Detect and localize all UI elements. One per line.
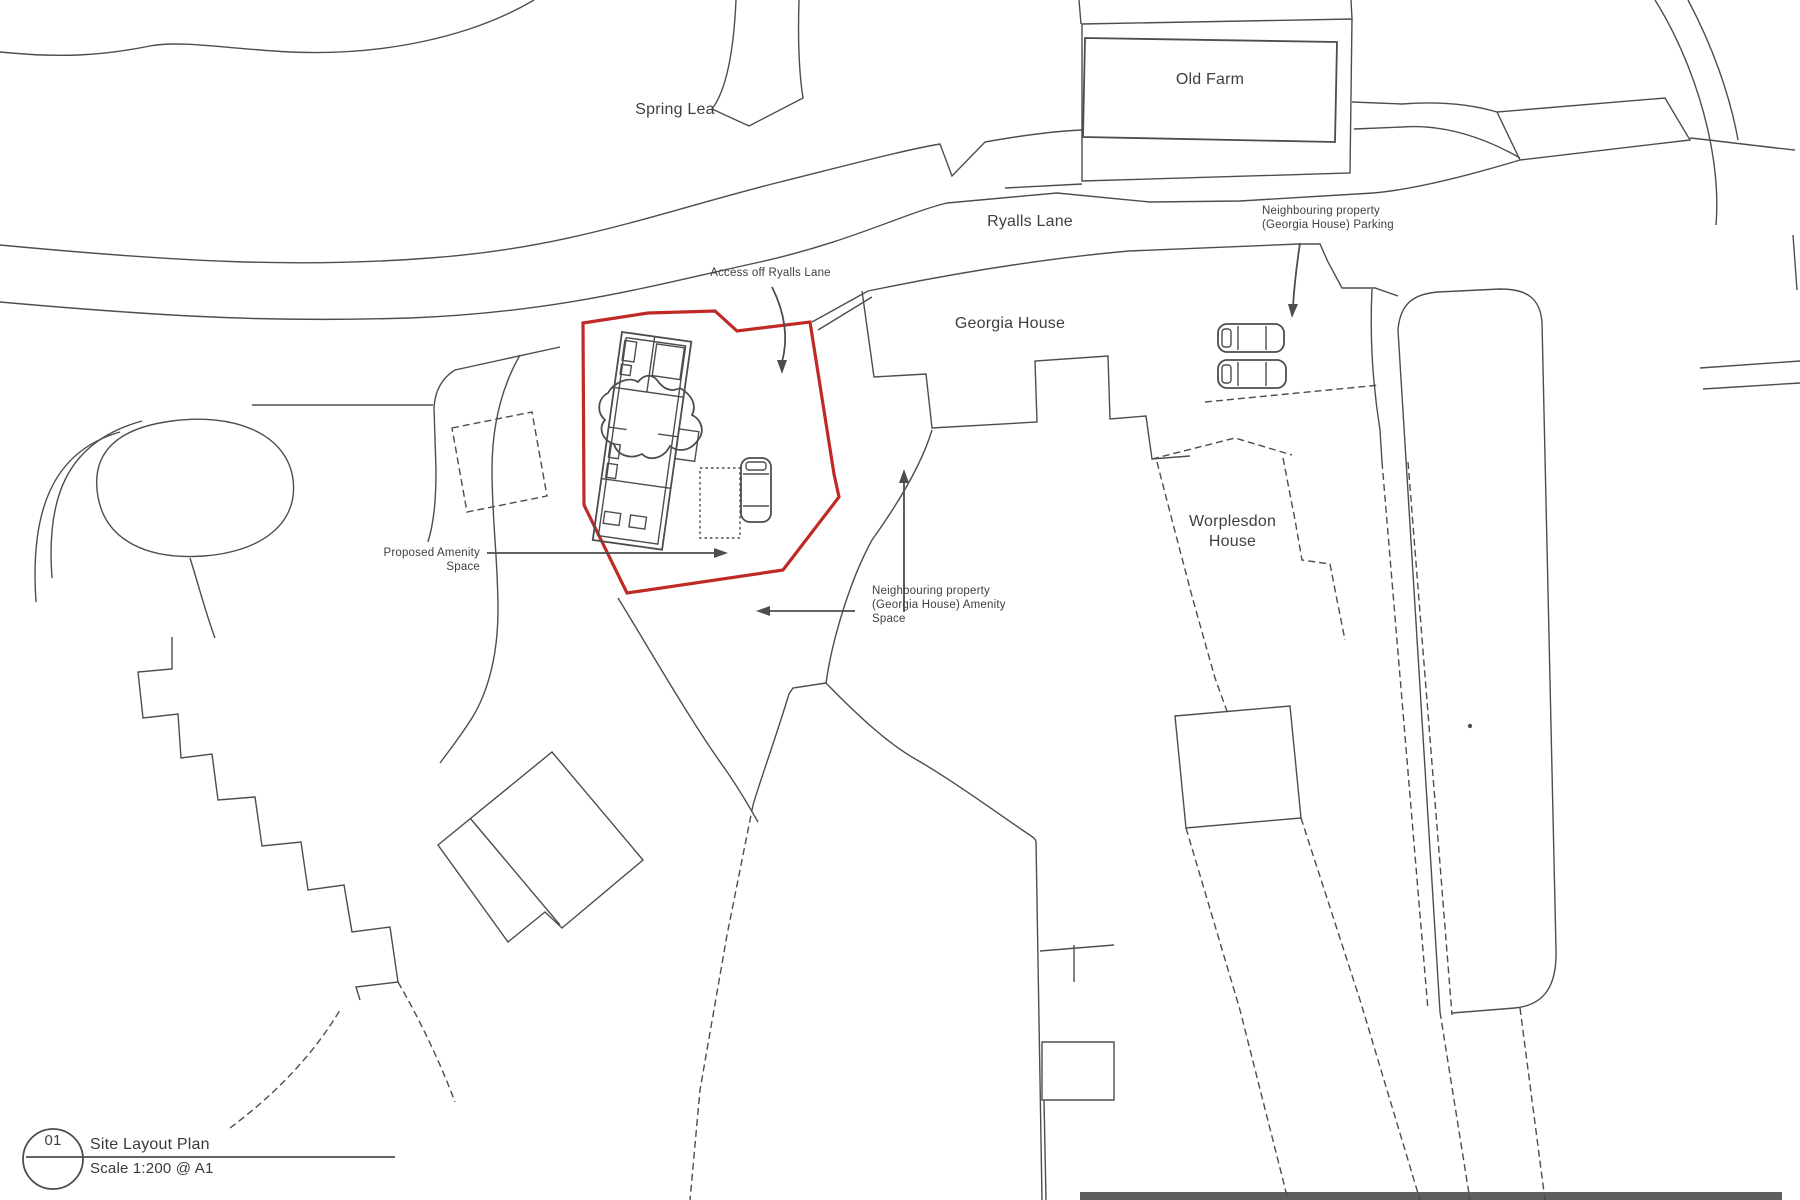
georgia-parcel-top: [868, 244, 1398, 296]
road-lower-edge: [0, 160, 1520, 319]
left-oval: [97, 419, 294, 556]
verge-building: [452, 412, 547, 512]
bottom-middle-parcels: [618, 598, 1114, 1200]
georgia-house-label: Georgia House: [930, 314, 1090, 334]
drawing-title: Site Layout Plan: [90, 1135, 390, 1155]
right-parcel: [1371, 289, 1556, 1200]
right-parcel-outline: [1398, 289, 1556, 1013]
neighbour-parking-label: Neighbouring property (Georgia House) Pa…: [1262, 204, 1442, 232]
worplesdon-building: [1175, 706, 1301, 828]
access-label: Access off Ryalls Lane: [698, 266, 843, 280]
terrace-building-b: [438, 752, 643, 942]
drawing-number: 01: [36, 1132, 70, 1150]
parking-arrow: [1293, 243, 1300, 306]
worplesdon-parcel: [1157, 458, 1420, 1200]
right-trapezoid-parcel: [1497, 98, 1690, 160]
drawing-scale: Scale 1:200 @ A1: [90, 1160, 390, 1178]
old-farm-building: [1083, 38, 1337, 142]
neighbour-parking-cars: [1218, 324, 1286, 388]
site-car: [741, 458, 771, 522]
terrace-steps: [138, 637, 398, 1000]
site-boundary-redline: [583, 311, 839, 593]
amenity-funnel: [826, 430, 932, 683]
site-layout-plan: Spring Lea Old Farm Ryalls Lane Neighbou…: [0, 0, 1800, 1200]
parked-car-1: [1218, 324, 1284, 352]
site-boundary: [583, 311, 839, 593]
bottom-building: [1042, 1042, 1114, 1100]
spring-lea-label: Spring Lea: [595, 100, 755, 120]
old-farm-label: Old Farm: [1110, 70, 1310, 90]
left-verge-shapes: [35, 347, 560, 638]
old-farm-buildings: [1005, 0, 1520, 188]
old-farm-enclosure: [1082, 19, 1352, 181]
parked-car-2: [1218, 360, 1286, 388]
proposed-amenity-label: Proposed Amenity Space: [358, 546, 480, 574]
scan-artifact-strip: [1080, 1192, 1782, 1200]
road-upper-edge: [0, 130, 1082, 263]
worplesdon-house-label: Worplesdon House: [1160, 512, 1305, 551]
neighbour-amenity-label: Neighbouring property (Georgia House) Am…: [872, 584, 1052, 626]
proposed-building: [593, 291, 872, 552]
bottom-left-terraces: [138, 355, 643, 1128]
bed-symbol: [652, 344, 684, 380]
ryalls-lane-label: Ryalls Lane: [950, 212, 1110, 232]
survey-dot: [1468, 724, 1472, 728]
parking-pad: [700, 468, 740, 538]
